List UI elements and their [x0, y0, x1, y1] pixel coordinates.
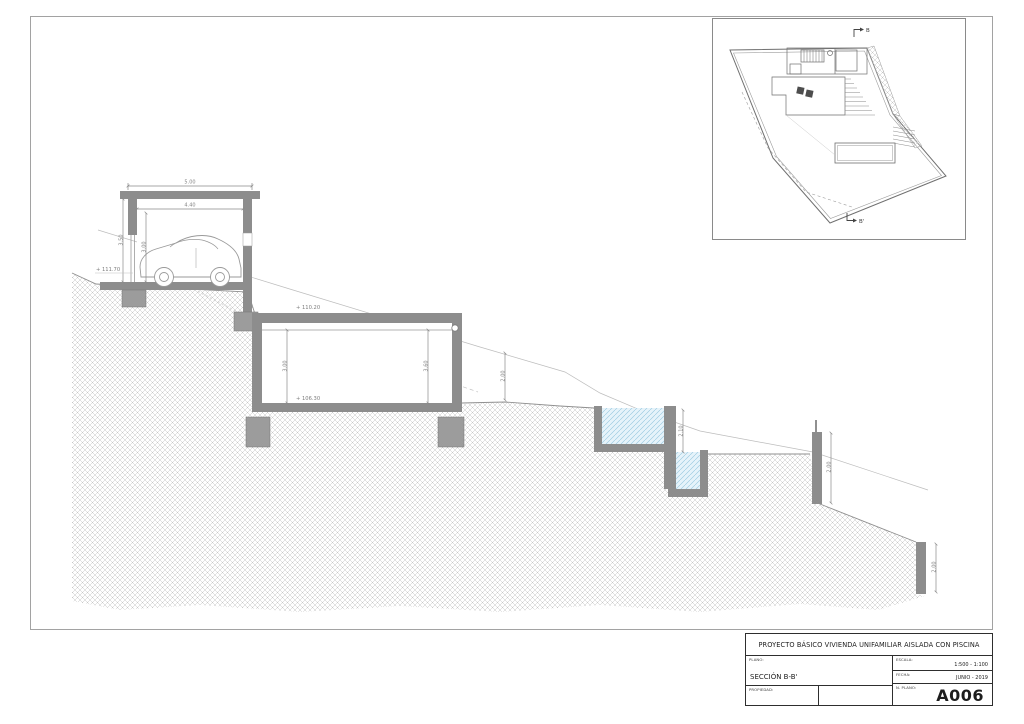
garage-door	[131, 235, 135, 283]
house-roof-slab	[252, 313, 462, 323]
plan-furniture-2	[805, 89, 813, 97]
section-mark-b-prime: B'	[859, 219, 864, 225]
garage-window-gap	[243, 233, 252, 246]
propiedad-label: PROPIEDAD:	[749, 687, 773, 692]
site-plan-inset: B B'	[713, 19, 966, 240]
plan-furniture-1	[796, 86, 804, 94]
garage-roof-slab	[120, 191, 260, 199]
n-plano-label: N. PLANO:	[896, 685, 916, 690]
pool-left-wall	[594, 406, 602, 452]
pool-deep-water	[676, 452, 700, 489]
plan-pool	[835, 143, 895, 163]
propiedad-cell: PROPIEDAD:	[746, 686, 819, 706]
propiedad-empty-cell	[819, 686, 892, 706]
pool-water	[602, 408, 664, 444]
garage-right-wall	[243, 199, 252, 331]
section-view: 5.00 4.40 3.50 3.00 3.00 3.60 2.00 2.10 …	[72, 180, 938, 613]
terrain-hatch	[72, 273, 925, 612]
dim-garage-width: 5.00	[184, 180, 195, 186]
escala-label: ESCALA:	[896, 657, 913, 662]
house-left-wall	[252, 313, 262, 412]
fecha-value: JUNIO - 2019	[956, 675, 988, 681]
fecha-cell: FECHA: JUNIO - 2019	[893, 671, 992, 684]
plano-cell: PLANO: SECCIÓN B-B'	[746, 656, 892, 686]
dim-garage-clear-width: 4.40	[184, 203, 195, 209]
escala-cell: ESCALA: 1:500 - 1:100	[893, 656, 992, 671]
pool-right-wall	[700, 450, 708, 497]
section-drawing-svg: 5.00 4.40 3.50 3.00 3.00 3.60 2.00 2.10 …	[0, 0, 1024, 724]
level-house-floor: + 106.30	[296, 396, 320, 402]
pool-bottom	[594, 444, 672, 452]
n-plano-value: A006	[936, 686, 984, 705]
n-plano-cell: N. PLANO: A006	[893, 684, 992, 706]
pool-mid-wall	[664, 406, 676, 489]
title-block: PROYECTO BÁSICO VIVIENDA UNIFAMILIAR AIS…	[745, 633, 993, 706]
plano-value: SECCIÓN B-B'	[750, 673, 797, 681]
dim-garage-height: 3.50	[119, 234, 125, 245]
dim-house-height-left: 3.00	[283, 360, 289, 371]
retaining-wall-lower	[916, 542, 926, 594]
escala-value: 1:500 - 1:100	[954, 662, 988, 668]
dim-garage-clear-height: 3.00	[142, 241, 148, 252]
level-garage-floor: + 111.70	[96, 267, 120, 273]
retaining-wall-upper	[812, 432, 822, 504]
garage-floor-slab	[100, 282, 252, 290]
fecha-label: FECHA:	[896, 672, 911, 677]
dim-terrain-cut: 2.00	[501, 370, 507, 381]
dim-retaining-wall: 2.00	[827, 461, 833, 472]
house-footing-right	[438, 417, 464, 447]
dim-lower-wall: 2.00	[932, 561, 938, 572]
project-title: PROYECTO BÁSICO VIVIENDA UNIFAMILIAR AIS…	[746, 634, 992, 656]
section-mark-b: B	[866, 28, 870, 34]
dim-pool-depth: 2.10	[679, 425, 685, 436]
house-detail-circle	[452, 325, 458, 331]
level-house-roof: + 110.20	[296, 305, 320, 311]
plano-label: PLANO:	[749, 657, 764, 662]
garage-left-wall	[128, 199, 137, 235]
house-footing-left	[246, 417, 270, 447]
dim-house-height-right: 3.60	[424, 360, 430, 371]
drawing-sheet: 5.00 4.40 3.50 3.00 3.00 3.60 2.00 2.10 …	[0, 0, 1024, 724]
house-floor-slab	[252, 403, 462, 412]
garage-footing-left	[122, 290, 146, 307]
